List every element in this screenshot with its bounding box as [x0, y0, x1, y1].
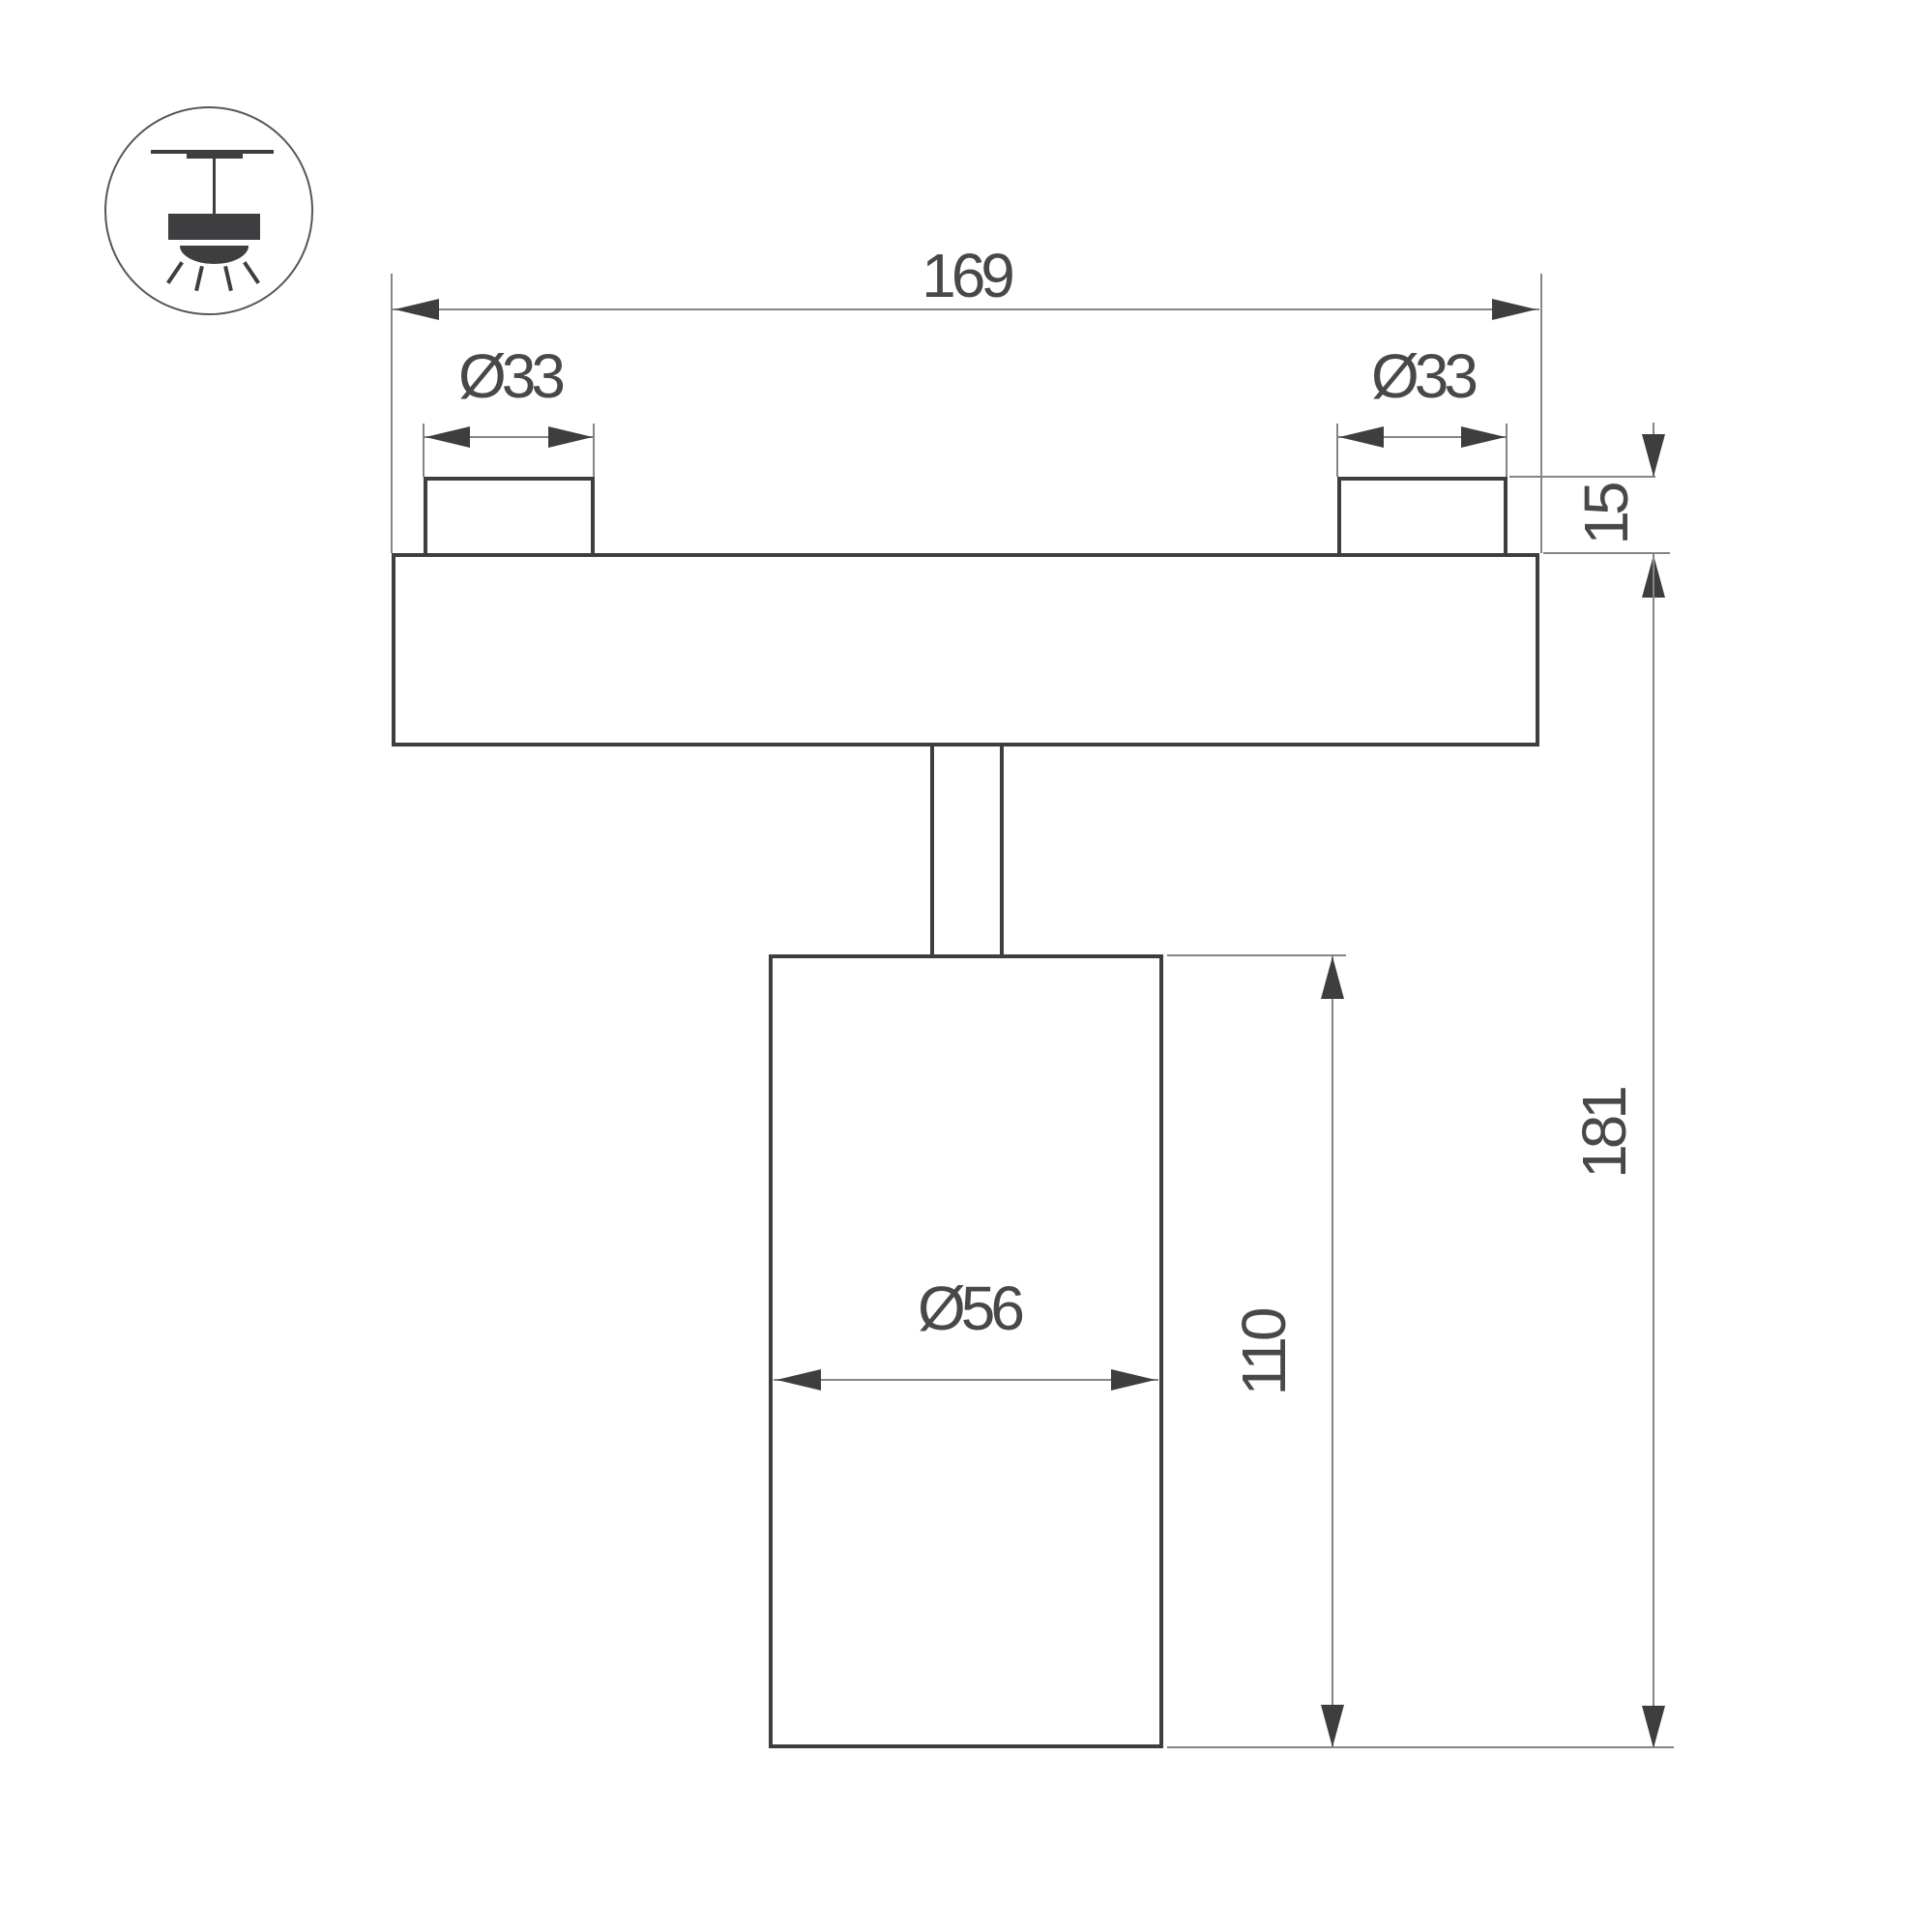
track-base-outline	[392, 553, 1539, 746]
arrow-down-icon	[1642, 434, 1665, 477]
dim-label-body-length: 110	[1233, 1311, 1295, 1395]
ext-line-169-right	[1540, 274, 1542, 553]
arrow-down-icon	[1642, 1706, 1665, 1748]
arrow-right-icon	[1461, 426, 1506, 448]
ext-line-boss-right-b	[1506, 424, 1508, 477]
technical-drawing-canvas: 169 Ø33 Ø33 15 181 110 Ø56	[0, 0, 1932, 1932]
dim-label-body-diameter: Ø56	[918, 1277, 1020, 1339]
icon-pendant-stem	[213, 154, 216, 215]
ext-line-boss-left-a	[423, 424, 424, 477]
dim-line-110	[1332, 955, 1333, 1748]
arrow-left-icon	[1339, 426, 1384, 448]
icon-lamp-body	[168, 214, 260, 240]
dim-label-right-boss-diameter: Ø33	[1371, 345, 1474, 407]
dim-label-overall-width: 169	[922, 245, 1010, 307]
right-mounting-boss-outline	[1337, 477, 1508, 557]
dim-label-base-thickness: 15	[1575, 485, 1637, 544]
arrow-left-icon	[776, 1369, 821, 1390]
left-mounting-boss-outline	[424, 477, 595, 557]
ext-line-bottom	[1167, 1746, 1674, 1748]
ext-line-boss-right-a	[1336, 424, 1338, 477]
dim-line-181	[1653, 554, 1654, 1748]
arrow-right-icon	[1492, 299, 1537, 320]
ext-line-boss-left-b	[593, 424, 595, 477]
arrow-left-icon	[425, 426, 470, 448]
arrow-right-icon	[1111, 1369, 1156, 1390]
dim-line-56	[774, 1379, 1158, 1381]
ext-line-15-bottom	[1543, 552, 1670, 554]
lamp-body-outline	[769, 954, 1163, 1748]
dim-label-left-boss-diameter: Ø33	[458, 345, 561, 407]
arrow-down-icon	[1321, 1705, 1344, 1747]
icon-circle-border	[104, 106, 313, 315]
dim-label-overall-height: 181	[1573, 1090, 1635, 1179]
ext-line-169-left	[391, 274, 393, 553]
ext-line-110-top	[1167, 954, 1346, 956]
arrow-up-icon	[1321, 956, 1344, 999]
arrow-right-icon	[548, 426, 593, 448]
swivel-stem-outline	[930, 746, 1004, 958]
arrow-left-icon	[395, 299, 439, 320]
ext-line-15-top	[1509, 476, 1655, 478]
